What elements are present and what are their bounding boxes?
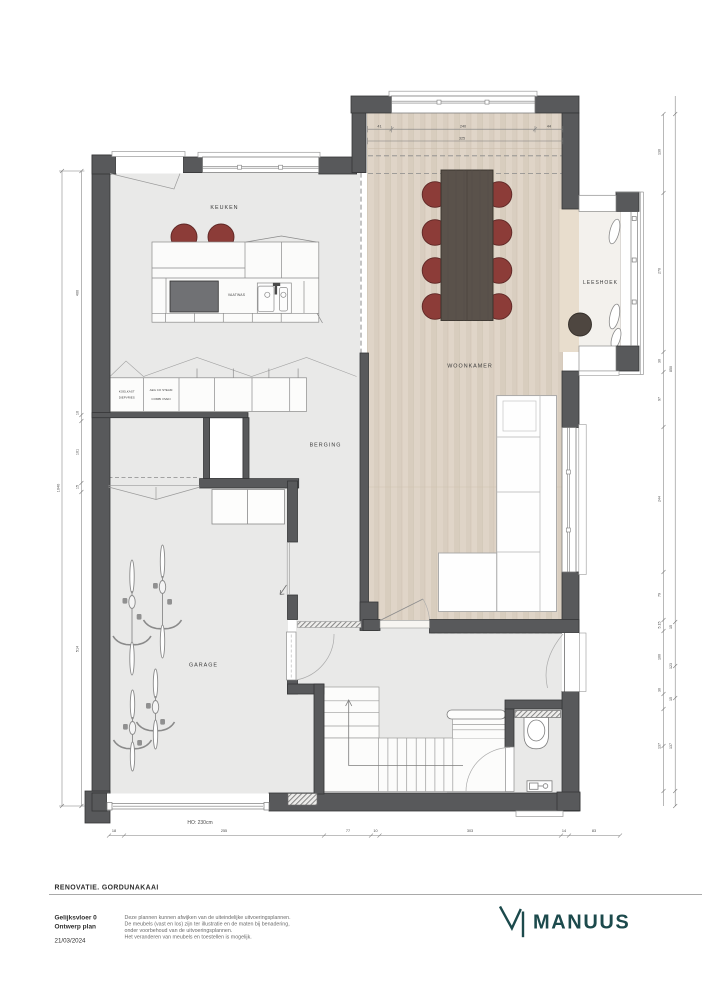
svg-text:101: 101 bbox=[76, 449, 80, 455]
svg-text:KEUKEN: KEUKEN bbox=[210, 205, 238, 211]
svg-text:15: 15 bbox=[669, 697, 673, 701]
svg-text:100: 100 bbox=[658, 654, 662, 660]
svg-text:14: 14 bbox=[562, 829, 566, 833]
svg-text:1040: 1040 bbox=[57, 484, 61, 492]
svg-text:15: 15 bbox=[76, 485, 80, 489]
svg-text:79: 79 bbox=[658, 593, 662, 597]
svg-text:10: 10 bbox=[373, 829, 377, 833]
svg-text:onder voorbehoud van de uitvoe: onder voorbehoud van de uitvoeringsplann… bbox=[125, 928, 233, 934]
svg-text:15: 15 bbox=[669, 625, 673, 629]
svg-text:303: 303 bbox=[467, 829, 473, 833]
svg-text:137: 137 bbox=[669, 743, 673, 749]
svg-text:244: 244 bbox=[658, 496, 662, 502]
svg-text:Deze plannen kunnen afwijken v: Deze plannen kunnen afwijken van de uite… bbox=[125, 915, 291, 921]
svg-text:MANUUS: MANUUS bbox=[533, 912, 630, 934]
svg-text:10: 10 bbox=[76, 411, 80, 415]
svg-text:130: 130 bbox=[658, 149, 662, 155]
svg-text:255: 255 bbox=[221, 829, 227, 833]
svg-text:77: 77 bbox=[346, 829, 350, 833]
svg-text:325: 325 bbox=[459, 136, 465, 140]
svg-text:18: 18 bbox=[112, 829, 116, 833]
svg-text:83: 83 bbox=[592, 829, 596, 833]
svg-text:RENOVATIE. GORDUNAKAAI: RENOVATIE. GORDUNAKAAI bbox=[55, 885, 159, 892]
svg-text:514: 514 bbox=[76, 646, 80, 652]
svg-text:Het veranderen van meubels en: Het veranderen van meubels en toestellen… bbox=[125, 935, 252, 941]
svg-text:41: 41 bbox=[377, 125, 381, 129]
svg-text:DIEPVRIES: DIEPVRIES bbox=[119, 396, 135, 400]
svg-text:270: 270 bbox=[658, 268, 662, 274]
svg-text:Ontwerp plan: Ontwerp plan bbox=[55, 924, 97, 931]
svg-text:97: 97 bbox=[658, 397, 662, 401]
svg-text:AEG CO STEAM: AEG CO STEAM bbox=[150, 388, 173, 392]
svg-text:400: 400 bbox=[76, 290, 80, 296]
svg-text:137: 137 bbox=[658, 743, 662, 749]
svg-text:COMBI OVEN: COMBI OVEN bbox=[151, 397, 170, 401]
svg-text:30: 30 bbox=[658, 359, 662, 363]
svg-text:44: 44 bbox=[547, 125, 551, 129]
svg-text:Gelijksvloer 0: Gelijksvloer 0 bbox=[55, 915, 98, 922]
svg-text:5.15: 5.15 bbox=[658, 622, 662, 629]
svg-text:850: 850 bbox=[669, 366, 673, 372]
svg-text:GARAGE: GARAGE bbox=[189, 663, 218, 669]
svg-text:123: 123 bbox=[669, 663, 673, 669]
svg-text:De meubels (vast en los) zijn: De meubels (vast en los) zijn ter illust… bbox=[125, 922, 290, 928]
svg-text:BERGING: BERGING bbox=[310, 443, 342, 449]
svg-text:VAATWAS: VAATWAS bbox=[228, 293, 246, 297]
svg-text:WOONKAMER: WOONKAMER bbox=[447, 364, 493, 370]
svg-text:30: 30 bbox=[658, 688, 662, 692]
svg-text:240: 240 bbox=[460, 125, 466, 129]
svg-text:KOELKAST: KOELKAST bbox=[119, 390, 135, 394]
svg-text:LEESHOEK: LEESHOEK bbox=[583, 280, 618, 286]
svg-text:21/03/2024: 21/03/2024 bbox=[55, 938, 87, 945]
svg-text:HO: 230cm: HO: 230cm bbox=[187, 820, 212, 826]
